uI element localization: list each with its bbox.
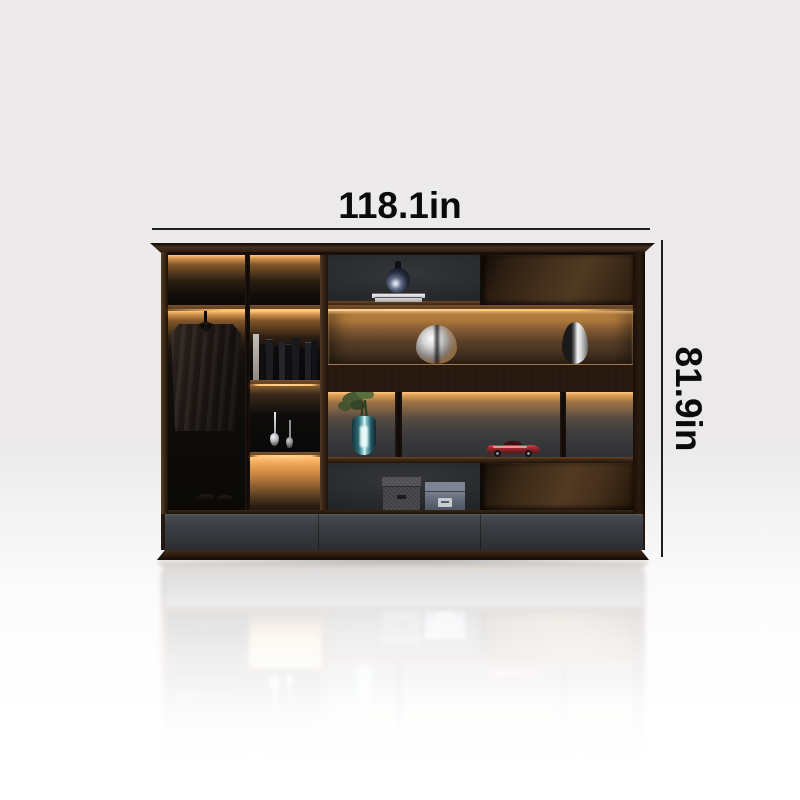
round-black-vase [386,268,410,293]
silver-vase-wide [416,325,457,364]
height-dimension-label: 81.9in [667,347,709,452]
hanger-hook [204,311,207,322]
plant-niche [328,392,395,457]
cabinet-right-stile [633,252,645,514]
slim-bottle-base [270,433,279,446]
display-niche-top [328,255,480,305]
hanging-shirt [171,324,241,431]
drawer-seam [318,514,319,550]
floor-reflection-fade [0,560,800,800]
lower-cabinet-door [482,463,633,510]
book-spine [279,342,285,380]
product-scene: 118.1in 81.9in [0,0,800,800]
lighted-display-shelf [328,311,633,364]
book-spine [312,340,317,380]
top-compartment-left [168,255,245,305]
book-spine [305,342,311,380]
width-dimension-line [152,228,650,230]
cabinet-plinth [157,550,649,560]
display-niche-right [566,392,633,457]
base-drawers [165,514,643,550]
storage-box-label-plate [438,498,452,507]
glass-vase [352,416,376,455]
slim-bottle [274,412,276,435]
width-dimension-label: 118.1in [250,185,550,227]
display-niche-middle [402,392,560,457]
book-spine [260,344,265,380]
dark-storage-box [383,477,420,510]
book-spine [274,347,278,380]
niche-partition [395,392,402,457]
cabinet-left-stile [161,252,168,514]
cabinet [150,243,655,560]
car-wheel [494,450,501,457]
top-compartment-second [250,255,320,305]
wardrobe-compartment [168,311,245,510]
storage-box-handle [397,495,406,499]
shoe [216,495,232,501]
book-stack [375,297,422,302]
lighted-compartment [250,457,320,508]
upper-cabinet-door [482,255,633,305]
bottle-compartment [250,386,320,452]
slim-bottle-base [286,437,293,448]
vertical-divider-wood [320,255,328,510]
toy-sports-car [487,441,540,457]
book-spine [266,339,273,380]
silver-vase-tall [562,322,588,364]
book-spine [300,348,304,380]
drawer-seam [480,514,481,550]
book-spine [292,338,299,380]
book-compartment [250,311,320,380]
car-wheel [525,450,532,457]
bookend [253,334,259,380]
height-dimension-line [661,240,663,557]
storage-niche [328,463,480,510]
book-spine [286,344,291,380]
book-row [253,332,317,380]
wood-fascia-band [328,364,633,393]
shoe [196,494,214,501]
